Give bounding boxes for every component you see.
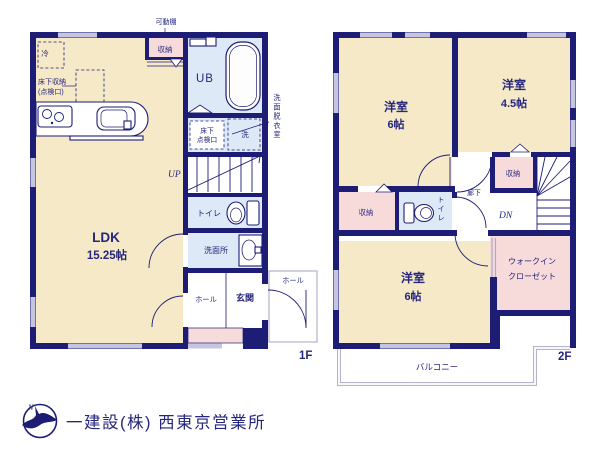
label-floor-1f: 1F	[299, 350, 312, 362]
label-up: UP	[168, 170, 181, 180]
label-ldk-area: 15.25帖	[87, 248, 128, 262]
toilet-icon	[404, 203, 434, 223]
wall-segment	[333, 186, 358, 192]
bath-shelf-icon	[190, 39, 206, 46]
window	[571, 120, 576, 147]
label-room-s: 洋室	[401, 270, 425, 285]
label-porch-hall: ホール	[282, 276, 304, 285]
wall-segment	[145, 38, 149, 60]
wall-segment	[490, 277, 497, 310]
label-dn: DN	[498, 211, 513, 221]
label-balcony: バルコニー	[416, 362, 458, 372]
label-toilet-2f: トイレ	[438, 197, 445, 222]
label-genkan: 玄関	[236, 292, 254, 303]
label-underfloor-storage-2: (点検口)	[38, 87, 64, 96]
wall-segment	[452, 38, 458, 157]
label-senmenjo: 洗面所	[204, 245, 228, 255]
window	[31, 158, 36, 187]
wall-segment	[387, 186, 455, 192]
bathtub-icon	[226, 42, 260, 110]
label-unit-bath: UB	[196, 73, 214, 85]
toilet-bowl-icon	[227, 202, 245, 224]
label-hall: ホール	[195, 295, 217, 304]
window	[58, 33, 97, 38]
bath-shelf-icon	[206, 37, 216, 46]
label-room-s-area: 6帖	[404, 289, 421, 303]
floorplan-1f: 可動棚 収納 冷 床下収納 (点検口) UB 洗面脱衣室 床下 点検口 洗 UP…	[30, 17, 317, 362]
wall-segment	[183, 38, 188, 235]
floorplan-2f: 洋室 6帖 洋室 4.5帖 洋室 6帖 収納 トイレ 廊下 収納 DN ウォーク…	[333, 32, 576, 384]
company-name: 一建設(株) 西東京営業所	[66, 413, 266, 432]
label-toilet-1f: トイレ	[197, 209, 221, 218]
wall-segment	[333, 230, 457, 236]
label-wic-1: ウォークイン	[508, 257, 556, 266]
window	[380, 344, 450, 349]
label-underfloor-hatch-1: 床下	[200, 126, 214, 135]
counter-edge	[70, 136, 143, 140]
vanity-icon	[239, 235, 262, 266]
floorplan-page: 可動棚 収納 冷 床下収納 (点検口) UB 洗面脱衣室 床下 点検口 洗 UP…	[0, 0, 600, 450]
door-arc	[457, 157, 492, 192]
room-ne	[458, 38, 570, 152]
stair-treads	[537, 200, 570, 224]
label-storage-top: 収納	[158, 44, 173, 54]
kitchen-counter-icon	[36, 102, 148, 140]
label-ldk: LDK	[92, 230, 120, 245]
label-room-ne: 洋室	[502, 77, 526, 92]
logo-letter: N	[27, 403, 34, 412]
wall-segment	[533, 157, 537, 193]
label-room-nw-area: 6帖	[387, 117, 404, 131]
toilet-tank-icon	[404, 203, 414, 223]
wall-segment	[183, 193, 268, 197]
window	[31, 297, 36, 327]
wall-segment	[183, 327, 188, 343]
label-senmen-datsui: 洗面脱衣室	[273, 93, 280, 139]
label-underfloor-storage-1: 床下収納	[38, 77, 66, 86]
wall-segment	[531, 152, 576, 157]
stairs-1f	[186, 154, 260, 192]
wall-segment	[395, 192, 399, 230]
window	[571, 80, 576, 108]
wall-segment	[492, 152, 510, 157]
toilet-tank-icon	[247, 201, 259, 225]
wall-segment	[243, 328, 268, 349]
label-rouka: 廊下	[467, 188, 481, 197]
wall-segment	[488, 230, 576, 236]
wall-segment	[452, 152, 457, 157]
company-logo: N	[22, 403, 57, 438]
label-underfloor-hatch-2: 点検口	[197, 135, 217, 144]
label-wic-2: クローゼット	[508, 271, 556, 281]
window	[405, 33, 430, 38]
faucet-icon	[124, 121, 131, 129]
wall-segment	[183, 113, 268, 118]
faucet-icon	[255, 247, 261, 253]
label-storage-left: 収納	[359, 208, 373, 217]
label-storage-mid: 収納	[506, 169, 520, 178]
window	[68, 344, 142, 349]
floorplan-drawing: 可動棚 収納 冷 床下収納 (点検口) UB 洗面脱衣室 床下 点検口 洗 UP…	[0, 0, 600, 450]
label-washer: 洗	[241, 129, 249, 139]
burner-knob-icon	[51, 122, 53, 124]
window	[334, 73, 339, 113]
label-room-ne-area: 4.5帖	[501, 96, 527, 110]
wall-segment	[183, 228, 268, 233]
window	[360, 33, 392, 38]
wall-segment	[570, 32, 576, 348]
window	[527, 33, 566, 38]
wall-segment	[490, 310, 576, 316]
door-arc	[455, 197, 486, 228]
label-room-nw: 洋室	[384, 99, 408, 114]
window	[188, 344, 222, 349]
stair-winders	[537, 157, 570, 196]
toilet-bowl-icon	[415, 205, 434, 222]
underfloor-hatch-dashed-box	[190, 121, 224, 149]
stairs-2f	[537, 157, 570, 230]
label-floor-2f: 2F	[558, 351, 571, 363]
wall-segment	[490, 188, 537, 193]
wall-segment	[490, 316, 500, 349]
wall-segment	[183, 268, 268, 273]
label-refrigerator: 冷	[41, 48, 49, 58]
window	[334, 270, 339, 310]
footer: N 一建設(株) 西東京営業所	[22, 403, 266, 438]
wall-segment	[490, 157, 495, 193]
entrance-door-arc	[268, 290, 306, 328]
wall-segment	[262, 32, 268, 284]
label-kadoudana: 可動棚	[156, 17, 177, 26]
genkan-step	[188, 328, 243, 343]
